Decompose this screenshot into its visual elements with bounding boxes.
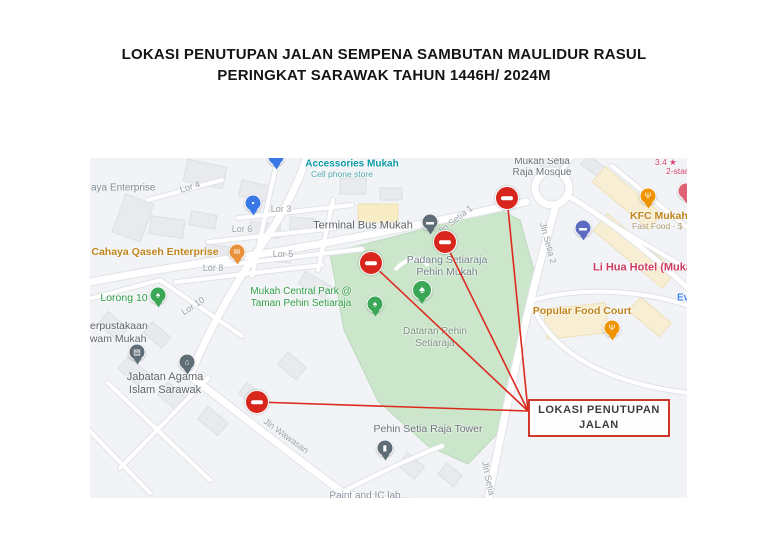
no-entry-bar bbox=[251, 400, 263, 404]
terminal-bus-pin[interactable]: ▬ bbox=[422, 214, 439, 231]
hotel-pin-pointer bbox=[579, 235, 587, 241]
terminal-bus-mukah-label: Terminal Bus Mukah bbox=[313, 220, 413, 233]
accessories-mukah-label: Accessories Mukah bbox=[305, 158, 398, 170]
pehin-setia-raja-tower-label: Pehin Setia Raja Tower bbox=[374, 423, 483, 435]
no-entry-bar bbox=[439, 240, 451, 244]
no-entry-bar bbox=[501, 196, 513, 200]
kfc-pin-pointer bbox=[644, 203, 652, 209]
no-entry-bar bbox=[365, 261, 377, 265]
business-pin[interactable]: ▪ bbox=[245, 195, 262, 212]
jabatan-agama-islam-sarawak-label: Jabatan AgamaIslam Sarawak bbox=[127, 371, 203, 397]
page-title: LOKASI PENUTUPAN JALAN SEMPENA SAMBUTAN … bbox=[0, 44, 768, 86]
kfc-mukah-sub-label: Fast Food · $ bbox=[632, 222, 683, 232]
popular-food-court-pin[interactable]: Ψ bbox=[604, 320, 621, 337]
street-lor-8-label: Lor 8 bbox=[203, 263, 224, 273]
padang-setiaraja-pehin-mukah-label: Padang SetiarajaPehin Mukah bbox=[407, 254, 488, 278]
everwin-label: Ev bbox=[677, 292, 687, 304]
government-pin-pointer bbox=[183, 369, 191, 375]
road-closure-map[interactable]: LOKASI PENUTUPAN JALAN Accessories Mukah… bbox=[90, 158, 687, 498]
road-closure-terminal-bus-marker bbox=[433, 230, 457, 254]
cahaya-qaseh-enterprise-label: Cahaya Qaseh Enterprise bbox=[91, 246, 218, 258]
lorong-10-park-pin-pointer bbox=[154, 302, 162, 308]
title-line-1: LOKASI PENUTUPAN JALAN SEMPENA SAMBUTAN … bbox=[0, 44, 768, 65]
road-closure-padang-west-marker bbox=[359, 251, 383, 275]
central-park-pin-pointer bbox=[371, 311, 379, 317]
mukah-central-park-label: Mukah Central Park @Taman Pehin Setiaraj… bbox=[250, 286, 351, 310]
clipped-pink-pin-pointer bbox=[682, 198, 687, 204]
hotel-pin[interactable]: ▬ bbox=[575, 220, 592, 237]
padang-park-pin-pointer bbox=[418, 298, 426, 304]
clipped-pink-pin[interactable] bbox=[678, 183, 688, 200]
padang-park-pin[interactable]: ♠ bbox=[412, 280, 432, 300]
tower-pin[interactable]: ▮ bbox=[377, 440, 394, 457]
central-park-pin[interactable]: ♠ bbox=[367, 296, 384, 313]
perpustakaan-awam-mukah-label: PerpustakaanAwam Mukah bbox=[90, 320, 148, 346]
popular-food-court-pin-pointer bbox=[608, 335, 616, 341]
street-lor-5-label: Lor 5 bbox=[273, 249, 294, 259]
closure-callout-box: LOKASI PENUTUPAN JALAN bbox=[528, 399, 670, 437]
library-pin[interactable]: ▤ bbox=[129, 344, 146, 361]
kfc-pin[interactable]: Ψ bbox=[640, 188, 657, 205]
road-closure-jln-setia-1-marker bbox=[495, 186, 519, 210]
callout-line-1: LOKASI PENUTUPAN bbox=[538, 403, 660, 418]
dataran-pehin-setiaraja-label: Dataran PehinSetiaraja bbox=[403, 326, 467, 350]
road-closure-jln-wawasan-marker bbox=[245, 390, 269, 414]
terminal-bus-pin-pointer bbox=[426, 229, 434, 235]
tower-pin-pointer bbox=[381, 455, 389, 461]
government-pin[interactable]: ⌂ bbox=[179, 354, 196, 371]
rating-class-label: 2-star bbox=[666, 167, 687, 177]
library-pin-pointer bbox=[133, 359, 141, 365]
callout-line-2: JALAN bbox=[579, 418, 619, 433]
street-lor-3-label: Lor 3 bbox=[271, 204, 292, 214]
lorong-10-label: Lorong 10 bbox=[100, 292, 147, 304]
paint-ic-lab-label: Paint and IC lab bbox=[329, 490, 400, 498]
lorong-10-park-pin[interactable]: ♠ bbox=[150, 287, 167, 304]
business-pin-pointer bbox=[249, 210, 257, 216]
accessories-mukah-pin-pointer bbox=[272, 164, 280, 170]
cahaya-qaseh-pin-pointer bbox=[233, 259, 241, 265]
jaya-enterprise-label: aya Enterprise bbox=[91, 182, 155, 194]
mukah-setia-raja-mosque-label: Mukah SetiaRaja Mosque bbox=[513, 158, 572, 178]
accessories-mukah-sub-label: Cell phone store bbox=[311, 170, 373, 180]
cahaya-qaseh-pin[interactable]: ✉ bbox=[229, 244, 246, 261]
li-hua-hotel-label: Li Hua Hotel (Mukah) bbox=[593, 262, 687, 275]
flyer-page: LOKASI PENUTUPAN JALAN SEMPENA SAMBUTAN … bbox=[0, 0, 768, 557]
popular-food-court-label: Popular Food Court bbox=[533, 305, 632, 317]
title-line-2: PERINGKAT SARAWAK TAHUN 1446H/ 2024M bbox=[0, 65, 768, 86]
street-lor-6-label: Lor 6 bbox=[232, 224, 253, 234]
